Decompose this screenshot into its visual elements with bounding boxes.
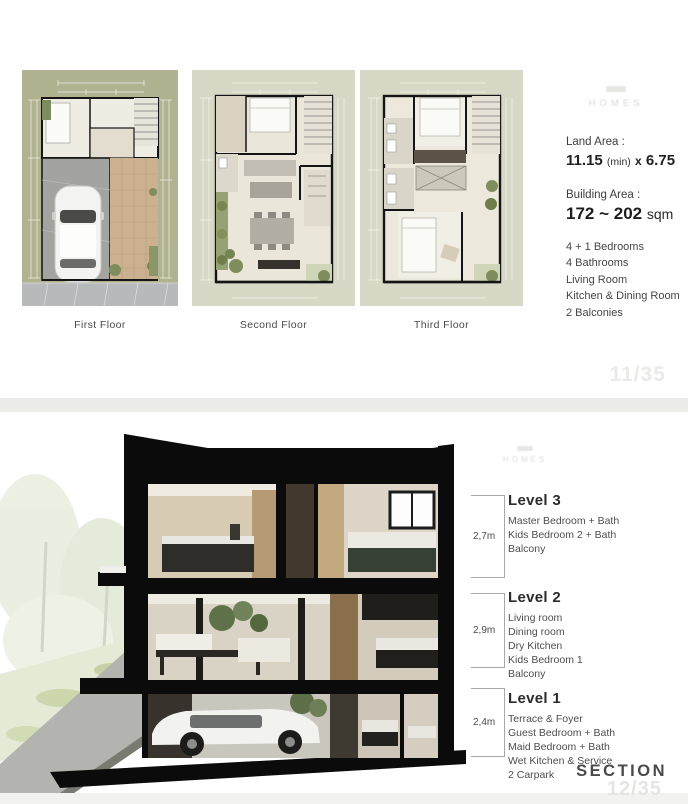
- building-area-label: Building Area :: [566, 189, 640, 201]
- bottom-strip: [0, 793, 688, 804]
- floorplans-slide: First Floor: [0, 0, 688, 398]
- brand-mark: [606, 86, 626, 92]
- level1-title: Level 1: [508, 690, 615, 707]
- level2-rooms: [148, 594, 438, 680]
- level3-height: 2,7m: [471, 531, 495, 542]
- page-number-slide1: 11/35: [610, 363, 666, 387]
- brand-name: HOMES: [566, 98, 666, 109]
- level3-description: Level 3 Master Bedroom + Bath Kids Bedro…: [508, 492, 619, 556]
- level2-item: Dining room: [508, 625, 583, 639]
- second-floor-plan-image: [192, 70, 355, 306]
- level3-rooms: [148, 484, 438, 578]
- brand-mark: [517, 446, 533, 451]
- second-floor-plan: Second Floor: [192, 70, 355, 331]
- level2-item: Dry Kitchen: [508, 639, 583, 653]
- feature-item: Living Room: [566, 272, 680, 288]
- level2-description: Level 2 Living room Dining room Dry Kitc…: [508, 589, 583, 681]
- first-floor-plan-image: [22, 70, 178, 306]
- car-top-view: [52, 186, 104, 282]
- level3-item: Master Bedroom + Bath: [508, 514, 619, 528]
- level1-item: Maid Bedroom + Bath: [508, 740, 615, 754]
- second-floor-label: Second Floor: [192, 319, 355, 331]
- level1-height: 2,4m: [471, 717, 495, 728]
- level3-item: Kids Bedroom 2 + Bath: [508, 528, 619, 542]
- slide-divider: [0, 398, 688, 412]
- section-title: SECTION: [576, 762, 667, 781]
- level3-height-bracket: 2,7m: [471, 495, 505, 578]
- level1-item: Guest Bedroom + Bath: [508, 726, 615, 740]
- brand-name: HOMES: [480, 455, 570, 464]
- land-area-label: Land Area :: [566, 136, 625, 148]
- feature-list: 4 + 1 Bedrooms 4 Bathrooms Living Room K…: [566, 239, 680, 321]
- balcony-floor-l3: [100, 566, 126, 573]
- level2-title: Level 2: [508, 589, 583, 606]
- level1-height-bracket: 2,4m: [471, 688, 505, 757]
- feature-item: 2 Balconies: [566, 305, 680, 321]
- land-area-value: 11.15 (min) x 6.75: [566, 152, 675, 169]
- level2-height: 2,9m: [471, 625, 495, 636]
- feature-item: Kitchen & Dining Room: [566, 288, 680, 304]
- brand-logo: HOMES: [566, 86, 666, 109]
- feature-item: 4 + 1 Bedrooms: [566, 239, 680, 255]
- level3-item: Balcony: [508, 542, 619, 556]
- level2-item: Kids Bedroom 1: [508, 653, 583, 667]
- third-floor-label: Third Floor: [360, 319, 523, 331]
- level2-item: Balcony: [508, 667, 583, 681]
- brand-logo: HOMES: [480, 446, 570, 464]
- level3-title: Level 3: [508, 492, 619, 509]
- level1-item: Terrace & Foyer: [508, 712, 615, 726]
- brochure-view: First Floor: [0, 0, 688, 804]
- feature-item: 4 Bathrooms: [566, 255, 680, 271]
- first-floor-plan: First Floor: [22, 70, 178, 331]
- section-slide: HOMES 2,7m Level 3 Master Bedroom + Bath…: [0, 412, 688, 804]
- third-floor-plan: Third Floor: [360, 70, 523, 331]
- first-floor-label: First Floor: [22, 319, 178, 331]
- level1-rooms: [148, 690, 438, 758]
- page-number-slide2: 12/35: [607, 778, 662, 801]
- third-floor-plan-image: [360, 70, 523, 306]
- building-area-value: 172 ~ 202 sqm: [566, 204, 673, 224]
- level2-height-bracket: 2,9m: [471, 593, 505, 668]
- level2-item: Living room: [508, 611, 583, 625]
